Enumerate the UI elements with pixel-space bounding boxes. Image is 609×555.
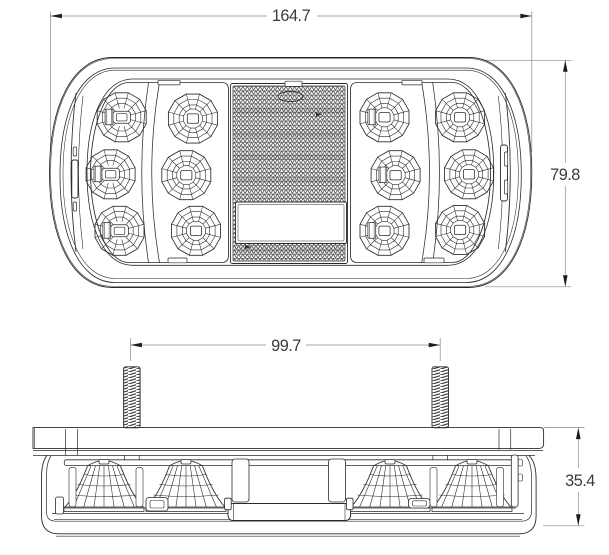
svg-text:35.4: 35.4: [565, 472, 595, 490]
svg-text:79.8: 79.8: [550, 166, 580, 184]
svg-text:99.7: 99.7: [271, 337, 301, 355]
svg-text:164.7: 164.7: [272, 7, 311, 25]
